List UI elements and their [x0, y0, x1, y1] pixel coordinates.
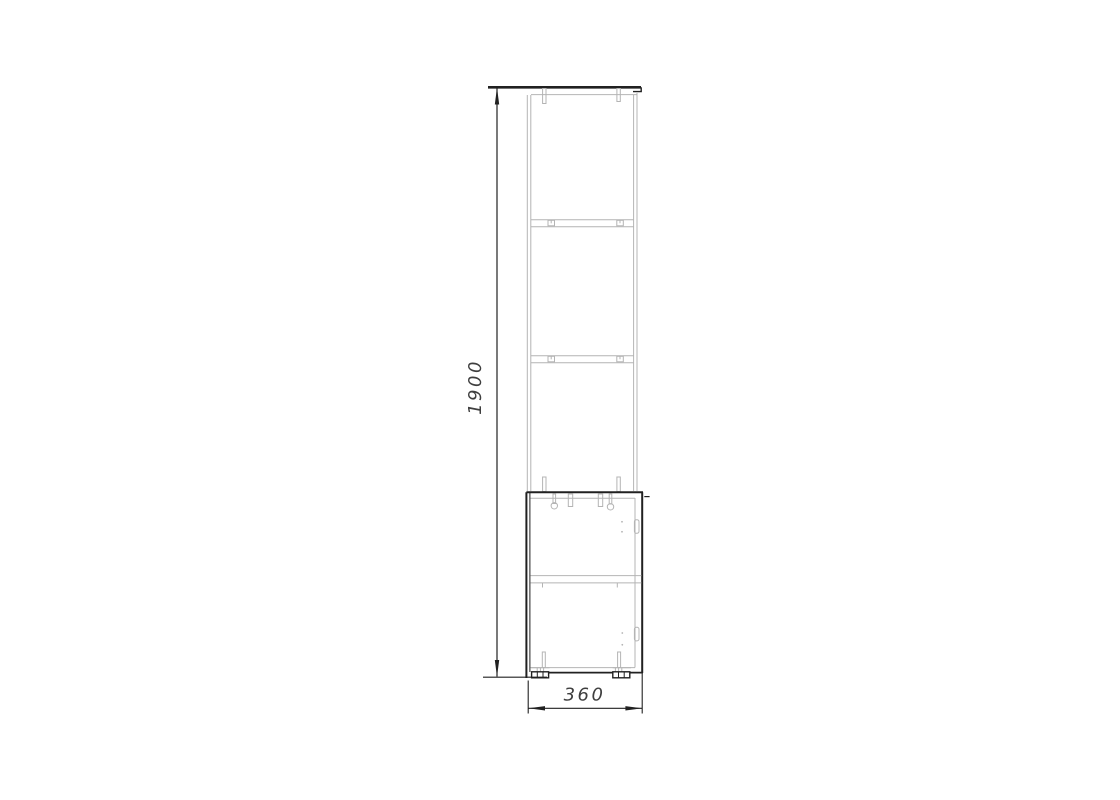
screw-head-right [607, 504, 613, 510]
top-dowel-left [543, 89, 546, 104]
hinge-bottom-screw-dot [621, 644, 623, 646]
screw-shaft-right [609, 494, 612, 504]
dimension-arrow-right [625, 706, 642, 710]
foot-right-stem [618, 652, 621, 668]
hinge-top-screw-dot [621, 521, 623, 523]
hinge-bottom-screw-dot [621, 632, 623, 634]
lower-dowel-left [543, 477, 546, 492]
foot-left [531, 652, 550, 678]
fasteners [551, 494, 614, 510]
cabinet-technical-drawing: 1900 360 [0, 0, 1120, 800]
dimension-arrow-left [528, 706, 545, 710]
dowel-pin-right [598, 494, 602, 507]
upper-cabinet-section [488, 87, 641, 491]
hinge-top-screw-dot [621, 531, 623, 533]
foot-left-stem [542, 652, 545, 668]
dowel-pin-left [568, 494, 572, 507]
lower-cabinet-section [526, 492, 649, 678]
dimension-arrow-up [495, 88, 499, 105]
height-dimension-label: 1900 [465, 359, 486, 415]
width-dimension-label: 360 [564, 685, 606, 706]
foot-right [613, 652, 631, 678]
foot-right-pad [613, 672, 630, 678]
shelf-upper [531, 220, 634, 227]
screw-shaft-left [553, 494, 556, 504]
dimension-arrow-down [495, 660, 499, 677]
shelf-middle [531, 356, 634, 363]
drawing-canvas: 1900 360 [0, 0, 1120, 800]
lower-dowel-right [617, 477, 620, 492]
height-dimension: 1900 [465, 88, 547, 678]
width-dimension: 360 [528, 673, 642, 714]
